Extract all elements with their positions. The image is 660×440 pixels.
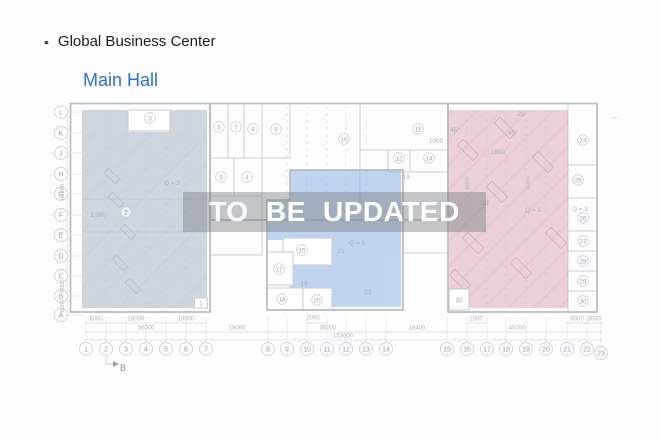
plan-label: 22 — [364, 289, 372, 296]
room-number-bubble-label: 29 — [579, 278, 587, 285]
svg-text:6000: 6000 — [60, 300, 66, 313]
room-number-bubble-label: 6 — [217, 124, 221, 131]
plan-label: 1800 — [491, 149, 506, 156]
grid-column-bubble-label: 14 — [382, 346, 390, 353]
grid-row-bubble-label: L — [59, 109, 63, 116]
plan-label: Q = 3 — [525, 207, 541, 214]
grid-row-bubble-label: F — [59, 212, 63, 219]
grid-column-bubble-label: 23 — [597, 350, 605, 357]
room-number-bubble-label: 4 — [245, 174, 249, 181]
plan-label: 13 — [402, 174, 410, 181]
plan-label: 18400 — [409, 326, 426, 332]
plan-label: Q = 3 — [572, 206, 588, 213]
room-number-bubble-label: 11 — [415, 126, 422, 133]
room-number-bubble-label: 28 — [579, 258, 587, 265]
room-number-bubble-label: 3 — [148, 115, 152, 122]
room-number-bubble-label: 18 — [278, 296, 286, 303]
plan-label: 21 — [337, 248, 345, 255]
plan-label: 45° — [508, 129, 518, 137]
grid-column-bubble-label: 17 — [483, 346, 491, 353]
plan-label: 23 — [517, 111, 525, 118]
grid-column-bubble-label: 20 — [542, 346, 550, 353]
room-number-bubble-label: 7 — [234, 124, 238, 131]
room-number-bubble-label: 12 — [395, 155, 403, 162]
grid-column-bubble-label: 10 — [303, 346, 311, 353]
grid-column-bubble-label: 1 — [84, 346, 88, 353]
room-number-bubble-label: 25 — [574, 177, 582, 184]
grid-column-bubble-label: 16 — [463, 346, 471, 353]
plan-label: Q = 3 — [164, 180, 180, 187]
room-number-bubble-label: 17 — [275, 266, 283, 273]
plan-label: 19 — [300, 281, 308, 288]
svg-text:6000: 6000 — [526, 177, 532, 190]
page: • Global Business Center Main Hall — [0, 0, 660, 440]
grid-column-bubble-label: 21 — [563, 346, 571, 353]
room-number-bubble-label: 20 — [313, 297, 321, 304]
plan-label: 6000 — [570, 317, 584, 323]
grid-row-bubble-label: K — [59, 130, 64, 137]
plan-label: 18000 — [229, 326, 246, 332]
grid-column-bubble-label: 22 — [583, 346, 591, 353]
room-number-bubble-label: 8 — [251, 126, 255, 133]
plan-label: 6000 — [89, 317, 103, 323]
grid-column-bubble-label: 5 — [164, 346, 168, 353]
plan-label: 153600 — [333, 334, 354, 340]
room-number-bubble-label: 30 — [579, 298, 587, 305]
svg-text:60000: 60000 — [60, 184, 66, 200]
plan-label: 3000 — [587, 317, 601, 323]
room-number-bubble-label: 9 — [274, 126, 278, 133]
room-number-bubble-label: 2 — [124, 209, 128, 216]
room-number-bubble-label: 14 — [425, 155, 433, 162]
grid-row-bubble-label: C — [58, 273, 63, 280]
svg-text:6000: 6000 — [465, 177, 471, 190]
grid-row-bubble-label: H — [58, 171, 63, 178]
room-number-bubble-label: 27 — [579, 238, 587, 245]
plan-label: Q = 3 — [349, 240, 365, 247]
grid-column-bubble-label: 3 — [124, 346, 128, 353]
grid-column-bubble-label: 2 — [104, 346, 108, 353]
room-number-bubble-label: 5 — [219, 174, 223, 181]
grid-column-bubble-label: 6 — [184, 346, 188, 353]
room-number-bubble-label: 24 — [579, 137, 587, 144]
grid-column-bubble-label: 18 — [502, 346, 510, 353]
plan-label: 36000 — [138, 326, 155, 332]
room-number-bubble-label: 26 — [579, 215, 587, 222]
plan-label: 2,000 — [90, 212, 106, 219]
room-number-bubble-label: 15 — [298, 247, 306, 254]
grid-column-bubble-label: 13 — [362, 346, 370, 353]
plan-label: 18000 — [178, 317, 195, 323]
watermark-text: TO BE UPDATED — [209, 196, 460, 228]
plan-label: 18000 — [128, 317, 145, 323]
plan-label: 45° — [450, 126, 460, 134]
plan-label: 2000 — [306, 316, 320, 322]
grid-column-bubble-label: 12 — [342, 346, 350, 353]
grid-row-bubble-label: E — [59, 232, 64, 239]
room-number-bubble-label: 10 — [340, 136, 348, 143]
grid-column-bubble-label: 9 — [285, 346, 289, 353]
plan-label: 1300 — [469, 317, 483, 323]
grid-row-bubble-label: D — [58, 253, 63, 260]
svg-text:6000: 6000 — [60, 280, 66, 293]
grid-column-bubble-label: 8 — [266, 346, 270, 353]
watermark-banner: TO BE UPDATED — [183, 192, 486, 232]
svg-text:32: 32 — [456, 298, 463, 304]
grid-column-bubble-label: 11 — [323, 346, 330, 353]
column-grid-bubbles: 1234567891011121314151617181920212223 — [80, 343, 608, 360]
grid-column-bubble-label: 4 — [144, 346, 148, 353]
plan-label: 45000 — [509, 326, 526, 332]
grid-row-bubble-label: B — [59, 293, 64, 300]
plan-label: 36000 — [320, 326, 337, 332]
grid-column-bubble-label: 15 — [443, 346, 451, 353]
grid-column-bubble-label: 19 — [522, 346, 530, 353]
plan-label: 1000 — [429, 138, 444, 145]
grid-row-bubble-label: J — [59, 150, 63, 157]
svg-text:B: B — [120, 363, 126, 373]
grid-column-bubble-label: 7 — [204, 346, 208, 353]
